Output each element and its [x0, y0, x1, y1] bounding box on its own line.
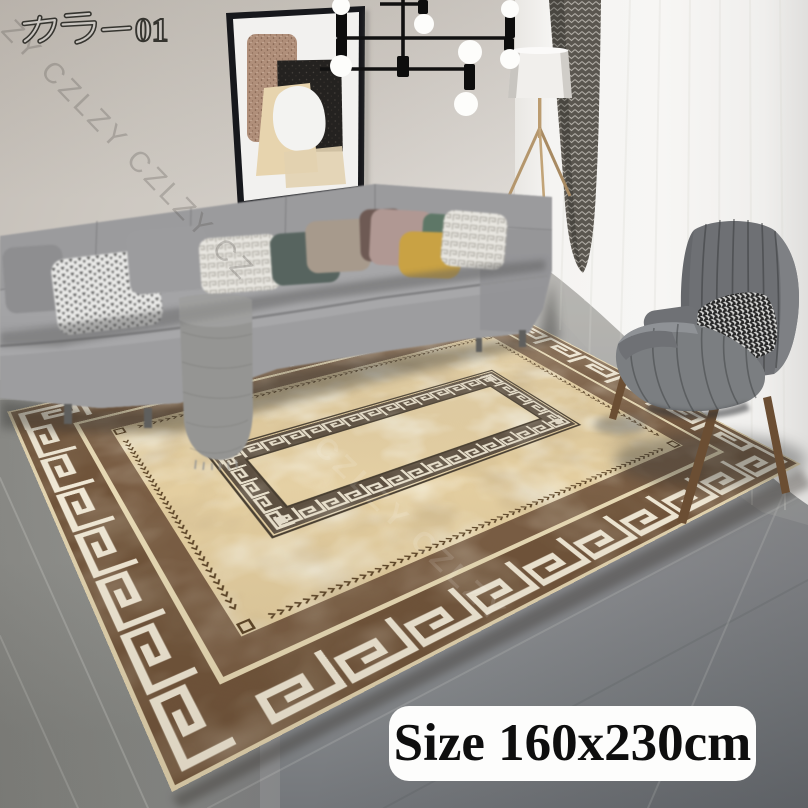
- svg-text:01: 01: [135, 12, 168, 49]
